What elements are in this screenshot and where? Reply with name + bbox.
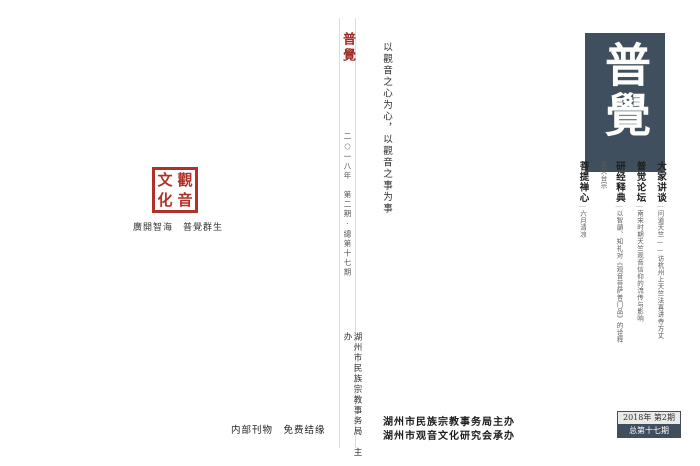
article-section: 普觉论坛 bbox=[635, 161, 646, 203]
article-item: 大家讲谈｜问道天竺——访杭州上天竺法喜讲寺方丈 bbox=[652, 161, 668, 343]
article-item: 普觉论坛｜南宋时期天竺观音信仰的流传与影响 bbox=[632, 161, 648, 343]
masthead-title: 普覺 bbox=[596, 41, 654, 141]
masthead-banner: 普覺 bbox=[585, 33, 665, 172]
seal-char-hua: 化 bbox=[155, 190, 175, 210]
spine-issue-line: 二○一八年 第二期·總第十七期 bbox=[343, 132, 352, 278]
article-section: 研经释典 bbox=[614, 161, 625, 203]
article-title: 南宋时期天竺观音信仰的流传与影响 bbox=[636, 210, 644, 322]
seal-caption: 廣開智海 普覺群生 bbox=[130, 220, 226, 233]
organizer-undertaker: 湖州市观音文化研究会承办 bbox=[383, 430, 515, 444]
spine-journal-logo: 普覺 bbox=[340, 32, 354, 64]
organizer-lines: 湖州市民族宗教事务局主办 湖州市观音文化研究会承办 bbox=[383, 416, 515, 444]
seal-char-yin: 音 bbox=[175, 190, 195, 210]
issue-year-number: 2018年 第2期 bbox=[618, 412, 680, 425]
article-list: 大家讲谈｜问道天竺——访杭州上天竺法喜讲寺方丈 普觉论坛｜南宋时期天竺观音信仰的… bbox=[576, 161, 668, 343]
journal-slogan: 以觀音之心为心，以觀音之事为事 bbox=[381, 42, 392, 215]
article-item: 菩提禅心｜六月清凉 bbox=[576, 161, 591, 343]
spine-fold-line-left bbox=[339, 18, 340, 448]
article-divider: ｜ bbox=[636, 203, 644, 210]
organizer-host: 湖州市民族宗教事务局主办 bbox=[383, 416, 515, 430]
issue-number-box: 2018年 第2期 总第十七期 bbox=[617, 411, 681, 438]
article-title: 六月清凉 bbox=[579, 210, 587, 238]
guanyin-culture-seal: 文 觀 化 音 bbox=[152, 167, 198, 213]
article-divider: ｜ bbox=[579, 203, 587, 210]
article-divider: ｜ bbox=[615, 203, 623, 210]
article-section: 大家讲谈 bbox=[655, 161, 666, 203]
article-title: 问道天竺——访杭州上天竺法喜讲寺方丈 bbox=[656, 210, 664, 339]
article-item: 研经释典｜以智顗、知礼对《观音菩萨普门品》的诠释看天台宗 bbox=[595, 161, 627, 343]
article-section: 菩提禅心 bbox=[578, 161, 589, 203]
seal-char-guan: 觀 bbox=[175, 170, 195, 190]
seal-char-wen: 文 bbox=[155, 170, 175, 190]
article-divider: ｜ bbox=[656, 203, 664, 210]
issue-cumulative-number: 总第十七期 bbox=[618, 425, 680, 437]
spine-publisher-line: 湖州市民族宗教事务局 主办 bbox=[342, 332, 362, 466]
back-cover-footer: 内部刊物 免费结缘 bbox=[231, 422, 326, 436]
